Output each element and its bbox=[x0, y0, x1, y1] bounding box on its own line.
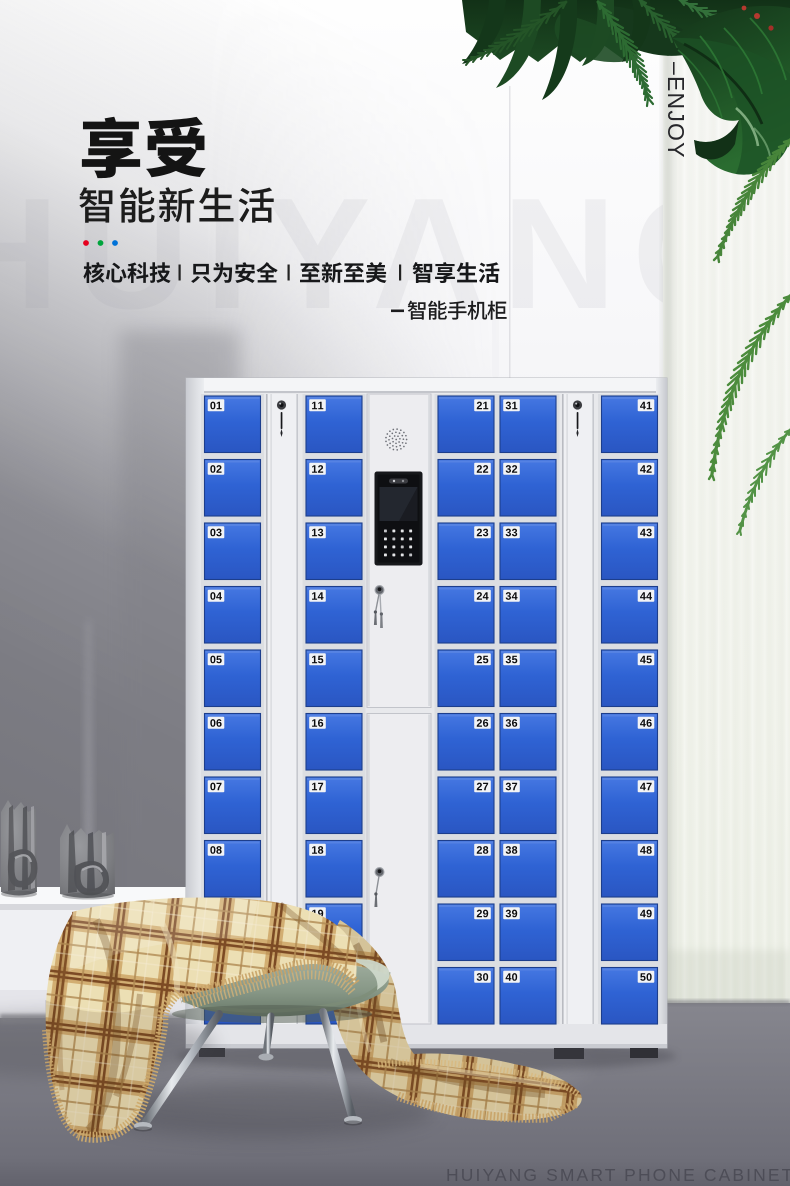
svg-text:HUIYANG SMART PHONE CABINET: HUIYANG SMART PHONE CABINET bbox=[446, 1165, 790, 1185]
svg-text:HUIYANG: HUIYANG bbox=[0, 166, 771, 342]
svg-text:–ENJOY: –ENJOY bbox=[663, 62, 689, 159]
